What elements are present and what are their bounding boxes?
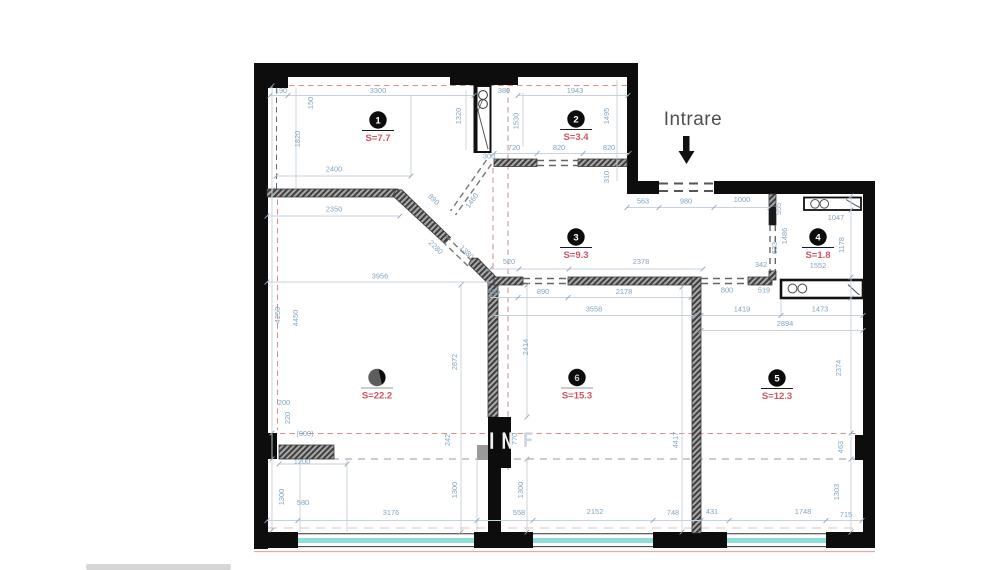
svg-text:4417: 4417 bbox=[671, 432, 680, 448]
svg-text:3558: 3558 bbox=[586, 305, 602, 314]
svg-text:1300: 1300 bbox=[277, 489, 286, 505]
svg-text:220: 220 bbox=[283, 412, 292, 424]
svg-text:1047: 1047 bbox=[828, 213, 844, 222]
svg-text:S=1.8: S=1.8 bbox=[805, 250, 830, 261]
svg-text:720: 720 bbox=[508, 143, 520, 152]
svg-text:310: 310 bbox=[602, 171, 611, 183]
svg-text:1820: 1820 bbox=[293, 131, 302, 147]
svg-text:5: 5 bbox=[774, 373, 780, 384]
svg-text:300: 300 bbox=[483, 152, 495, 161]
svg-text:558: 558 bbox=[513, 508, 525, 517]
svg-text:555: 555 bbox=[774, 203, 783, 215]
svg-text:6: 6 bbox=[574, 373, 579, 384]
svg-text:2414: 2414 bbox=[521, 339, 530, 355]
svg-text:3956: 3956 bbox=[372, 272, 388, 281]
svg-text:2350: 2350 bbox=[326, 205, 342, 214]
svg-text:3300: 3300 bbox=[370, 86, 386, 95]
svg-text:495: 495 bbox=[488, 287, 500, 296]
svg-text:2178: 2178 bbox=[616, 287, 632, 296]
svg-text:S=7.7: S=7.7 bbox=[365, 133, 390, 144]
svg-text:S=3.4: S=3.4 bbox=[563, 132, 589, 143]
svg-text:2374: 2374 bbox=[834, 360, 843, 376]
svg-text:190: 190 bbox=[275, 86, 287, 95]
svg-text:820: 820 bbox=[603, 143, 615, 152]
svg-text:890: 890 bbox=[537, 287, 549, 296]
svg-text:1300: 1300 bbox=[450, 482, 459, 498]
svg-text:380: 380 bbox=[498, 86, 510, 95]
svg-text:1200: 1200 bbox=[294, 457, 310, 466]
svg-text:520: 520 bbox=[503, 257, 515, 266]
svg-text:2378: 2378 bbox=[633, 257, 649, 266]
svg-text:S=22.2: S=22.2 bbox=[362, 391, 392, 402]
svg-text:580: 580 bbox=[297, 498, 309, 507]
svg-text:1552: 1552 bbox=[810, 261, 826, 270]
svg-text:Intrare: Intrare bbox=[664, 109, 722, 130]
svg-text:431: 431 bbox=[706, 507, 718, 516]
svg-text:800: 800 bbox=[721, 286, 733, 295]
svg-text:563: 563 bbox=[637, 197, 649, 206]
svg-text:S=15.3: S=15.3 bbox=[562, 391, 592, 402]
svg-text:1473: 1473 bbox=[812, 305, 828, 314]
svg-text:1178: 1178 bbox=[837, 237, 846, 253]
svg-text:4250: 4250 bbox=[273, 307, 282, 323]
svg-text:1300: 1300 bbox=[516, 482, 525, 498]
svg-text:1486: 1486 bbox=[780, 228, 789, 244]
svg-text:519: 519 bbox=[758, 286, 770, 295]
svg-text:S=12.3: S=12.3 bbox=[762, 391, 792, 402]
svg-text:2872: 2872 bbox=[450, 354, 459, 370]
svg-text:200: 200 bbox=[278, 398, 290, 407]
svg-text:980: 980 bbox=[680, 197, 692, 206]
svg-text:4450: 4450 bbox=[291, 310, 300, 326]
svg-text:3: 3 bbox=[573, 232, 578, 243]
svg-text:4: 4 bbox=[815, 232, 821, 243]
svg-text:S=9.3: S=9.3 bbox=[563, 250, 588, 261]
svg-text:1303: 1303 bbox=[832, 484, 841, 500]
svg-text:242: 242 bbox=[443, 434, 452, 446]
svg-text:1530: 1530 bbox=[512, 113, 521, 129]
svg-text:2400: 2400 bbox=[326, 165, 342, 174]
svg-text:342: 342 bbox=[755, 260, 767, 269]
svg-text:2894: 2894 bbox=[777, 319, 793, 328]
svg-text:2: 2 bbox=[573, 114, 578, 125]
svg-text:463: 463 bbox=[836, 441, 845, 453]
svg-text:715: 715 bbox=[840, 510, 852, 519]
svg-text:1419: 1419 bbox=[734, 305, 750, 314]
svg-text:1320: 1320 bbox=[454, 108, 463, 124]
svg-text:1: 1 bbox=[375, 115, 381, 126]
svg-text:748: 748 bbox=[667, 508, 679, 517]
svg-text:1748: 1748 bbox=[795, 507, 811, 516]
svg-text:820: 820 bbox=[553, 143, 565, 152]
svg-text:633: 633 bbox=[770, 242, 779, 254]
svg-text:3176: 3176 bbox=[383, 508, 399, 517]
svg-text:150: 150 bbox=[306, 97, 315, 109]
svg-text:(900): (900) bbox=[296, 429, 313, 438]
svg-text:1000: 1000 bbox=[734, 195, 750, 204]
svg-text:2152: 2152 bbox=[587, 507, 603, 516]
svg-text:1495: 1495 bbox=[602, 108, 611, 124]
svg-text:1943: 1943 bbox=[567, 86, 583, 95]
